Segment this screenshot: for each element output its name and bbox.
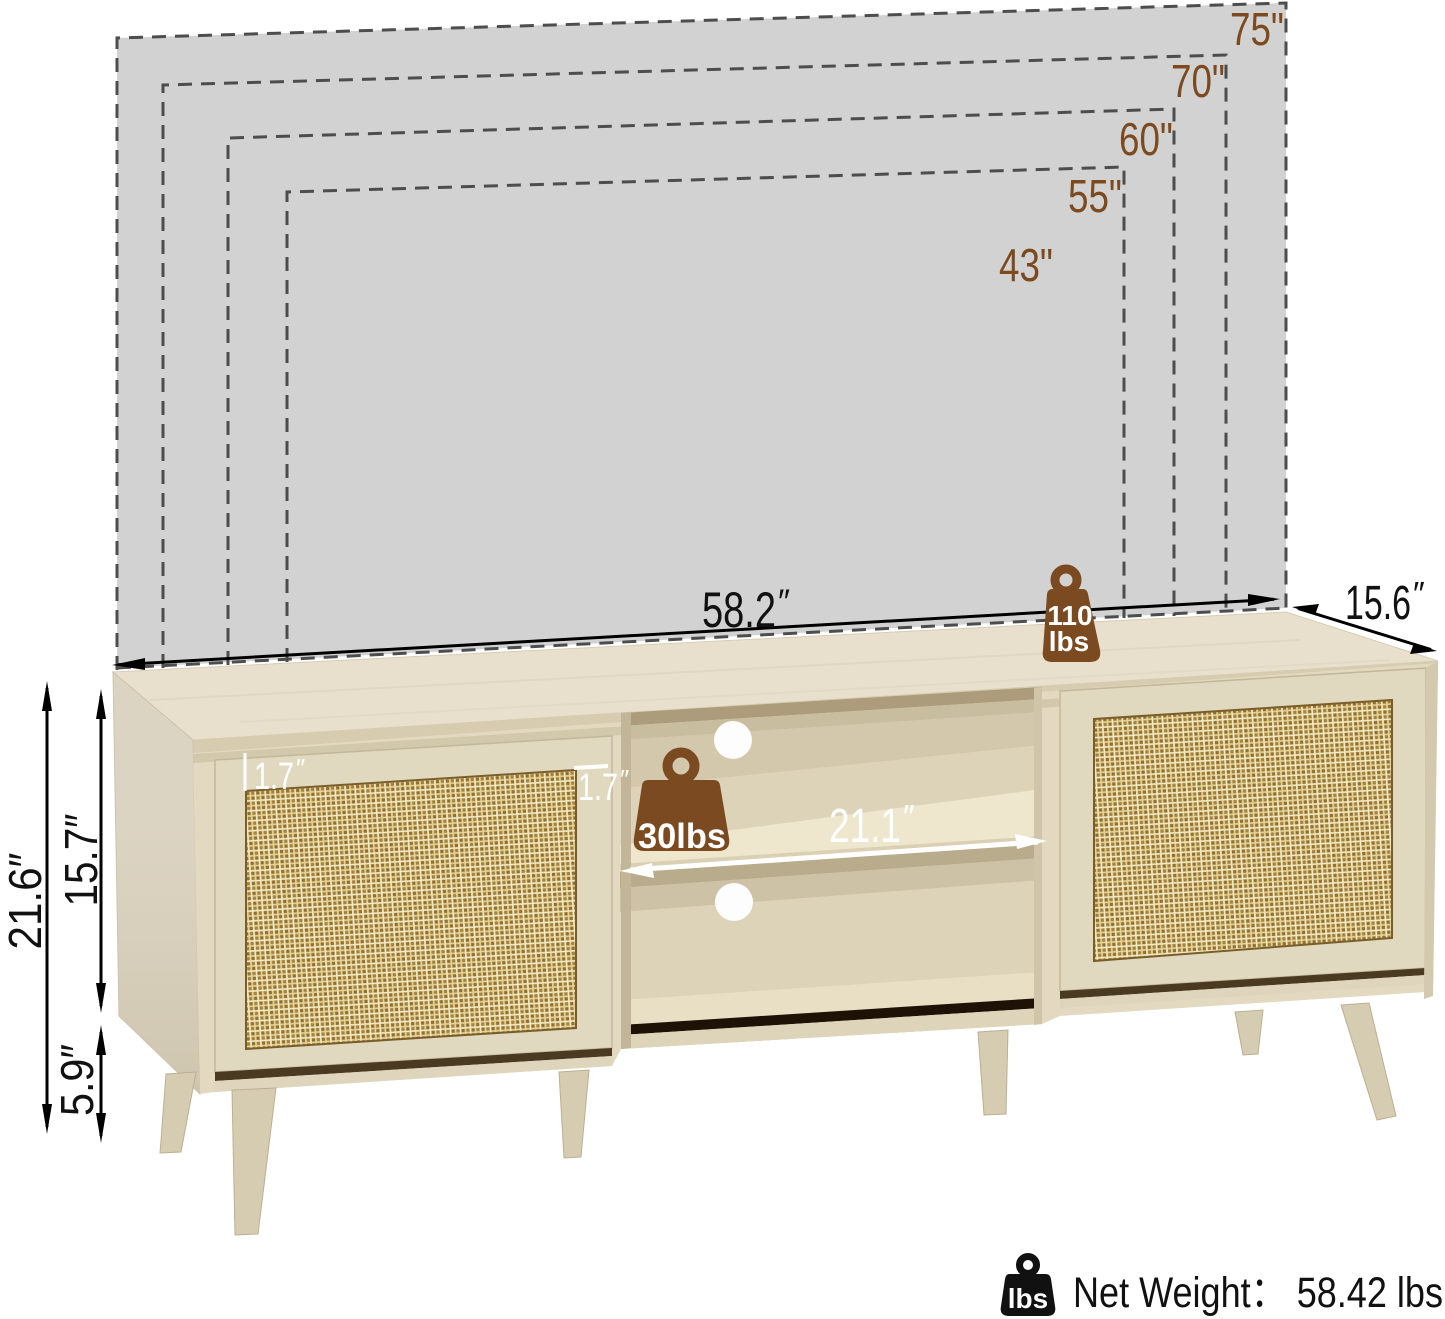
svg-text:Net Weight： 58.42 lbs: Net Weight： 58.42 lbs bbox=[1073, 1269, 1443, 1317]
svg-text:1.7: 1.7 bbox=[254, 756, 294, 798]
svg-text:58.2: 58.2 bbox=[702, 582, 776, 638]
svg-text:″: ″ bbox=[903, 798, 915, 835]
svg-text:70": 70" bbox=[1171, 55, 1225, 107]
svg-text:30lbs: 30lbs bbox=[638, 817, 726, 856]
svg-text:5.9″: 5.9″ bbox=[51, 1044, 103, 1116]
svg-text:15.6: 15.6 bbox=[1345, 577, 1411, 630]
svg-text:21.1: 21.1 bbox=[829, 800, 901, 853]
svg-text:75": 75" bbox=[1230, 3, 1284, 55]
svg-text:″: ″ bbox=[1413, 575, 1425, 612]
svg-text:″: ″ bbox=[620, 764, 629, 794]
svg-text:60": 60" bbox=[1119, 113, 1173, 165]
svg-text:55": 55" bbox=[1068, 170, 1122, 222]
svg-text:21.6″: 21.6″ bbox=[0, 853, 51, 950]
svg-text:lbs: lbs bbox=[1049, 626, 1089, 657]
svg-text:1.7: 1.7 bbox=[578, 767, 618, 809]
svg-text:″: ″ bbox=[778, 583, 790, 621]
svg-text:″: ″ bbox=[296, 753, 305, 783]
svg-text:lbs: lbs bbox=[1008, 1283, 1048, 1314]
svg-text:15.7″: 15.7″ bbox=[55, 814, 107, 907]
svg-text:43": 43" bbox=[999, 239, 1053, 291]
